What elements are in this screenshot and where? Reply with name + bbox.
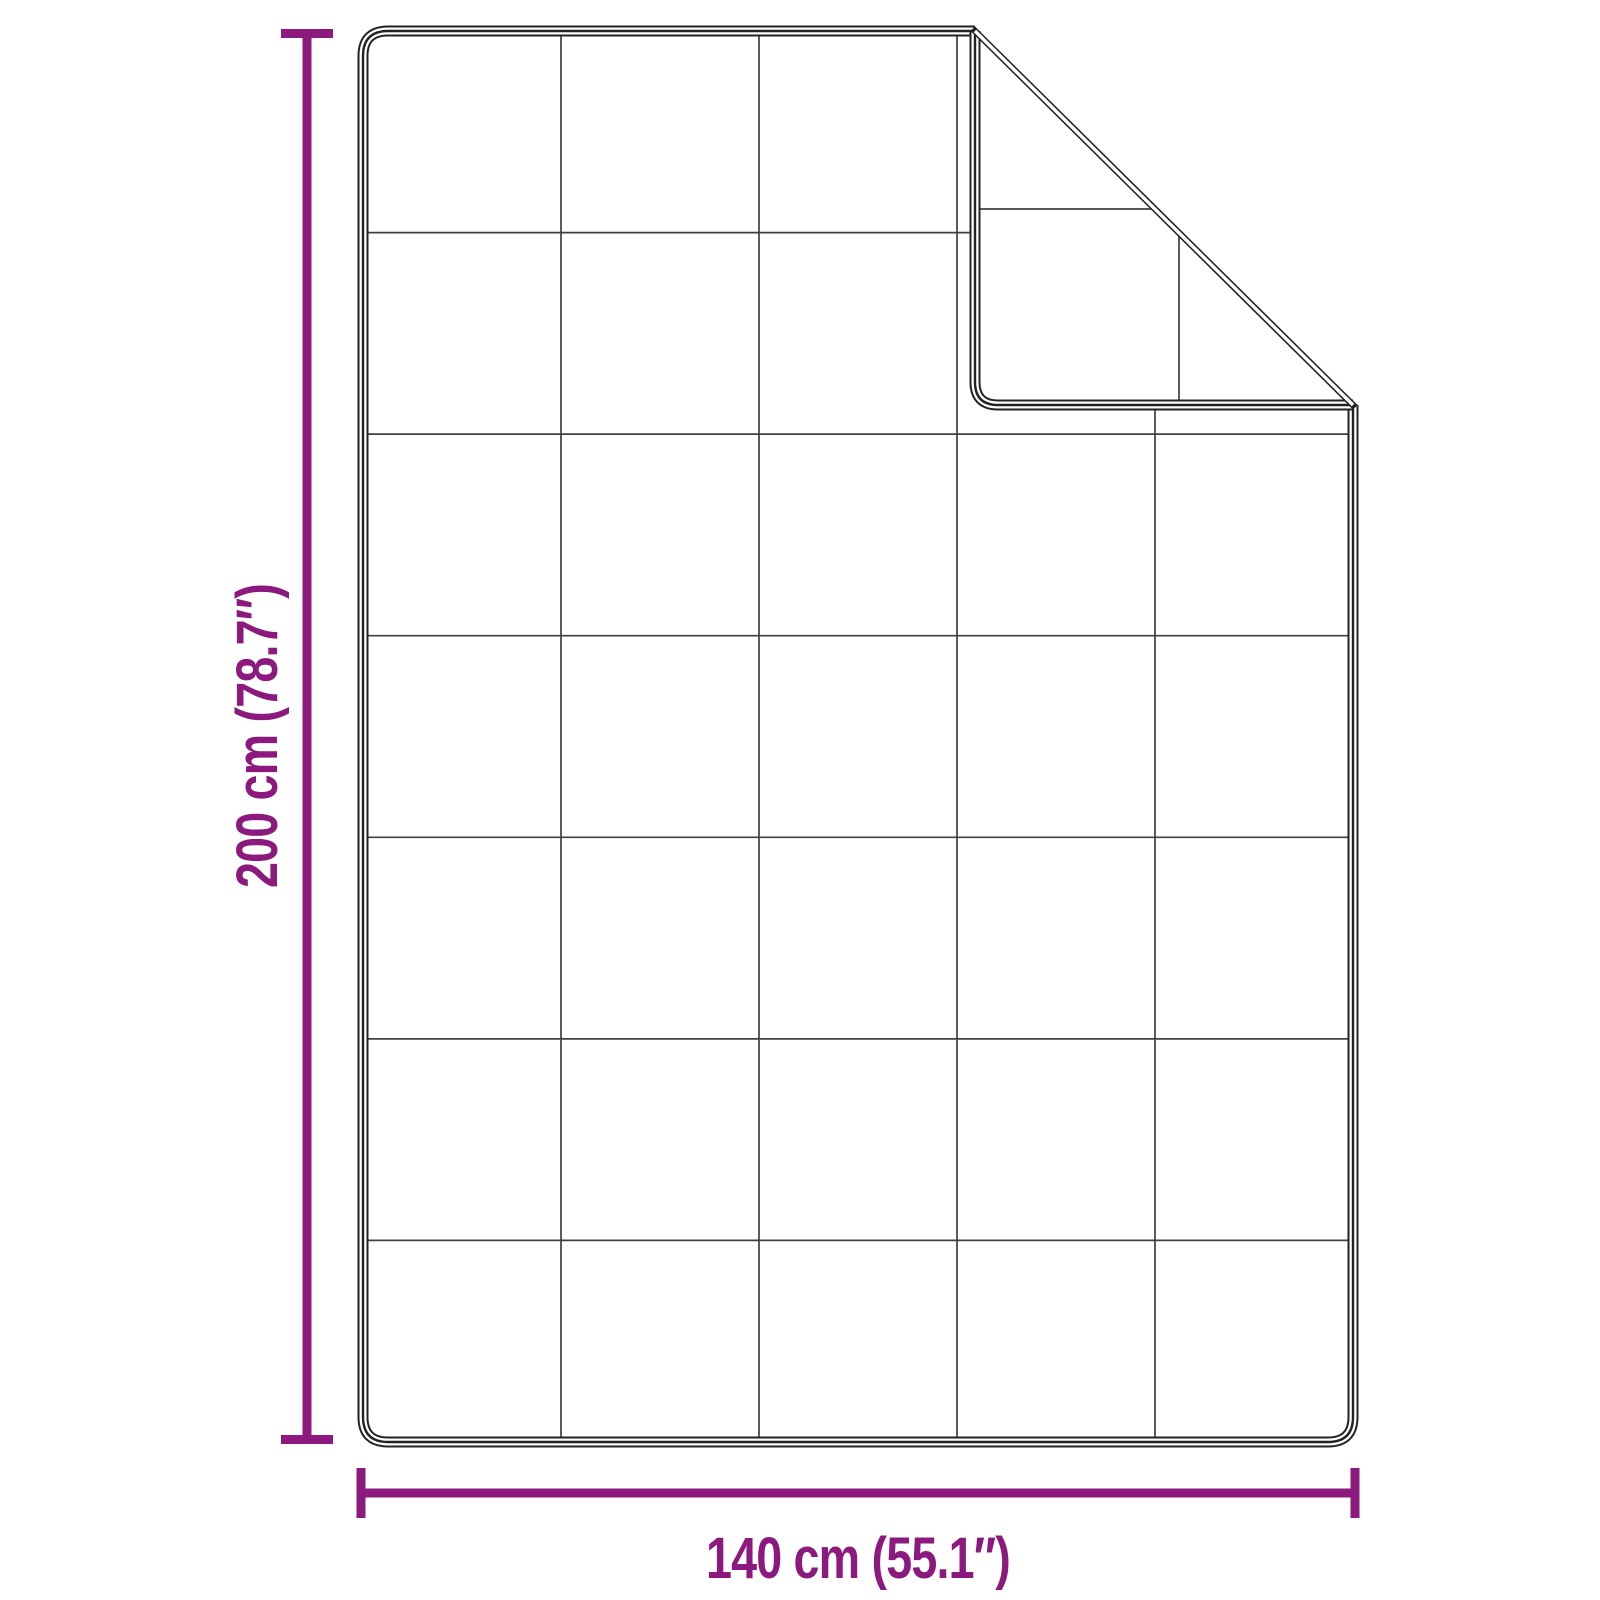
width-dimension-label: 140 cm (55.1″) [706,1526,1010,1591]
folded-corner-flap [975,31,1353,405]
blanket-body [363,31,1353,1442]
dimension-diagram: 200 cm (78.7″) 140 cm (55.1″) [0,0,1600,1600]
blanket-dimension-drawing: 200 cm (78.7″) 140 cm (55.1″) [0,0,1600,1600]
height-dimension-label: 200 cm (78.7″) [225,584,290,888]
width-dimension-line [361,1468,1355,1518]
